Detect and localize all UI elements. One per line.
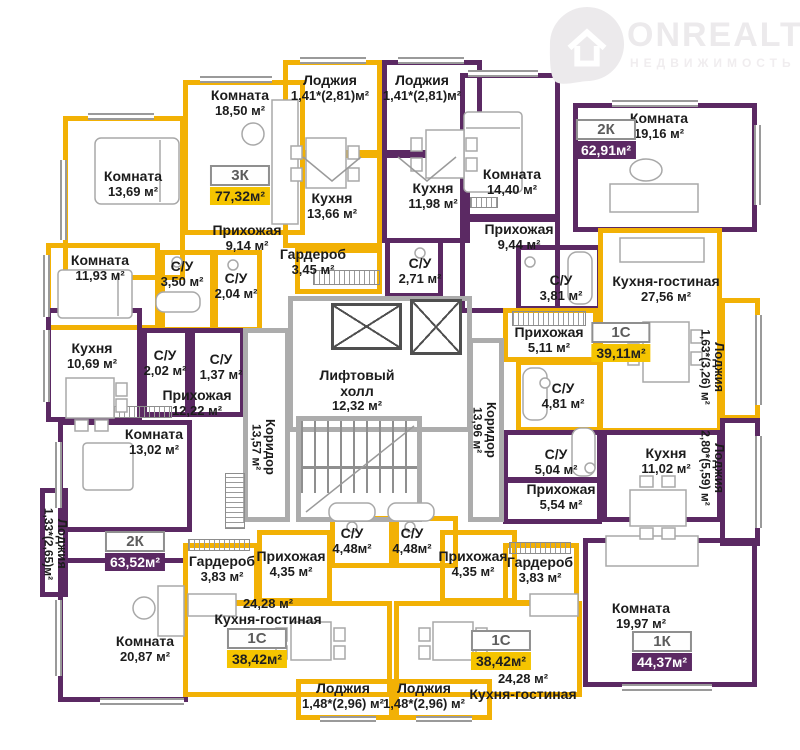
window bbox=[754, 125, 761, 205]
window bbox=[755, 315, 762, 405]
window bbox=[300, 57, 366, 64]
label-wardrobe-br: Гардероб3,83 м² bbox=[507, 555, 573, 585]
label-kitchen-1102: Кухня11,02 м² bbox=[641, 446, 690, 476]
label-room-1997: Комната19,97 м² bbox=[612, 601, 670, 631]
stair-landing bbox=[301, 466, 417, 469]
watermark-brand: ONREALT bbox=[627, 16, 800, 55]
window bbox=[55, 600, 62, 676]
label-hall-554: Прихожая5,54 м² bbox=[526, 482, 595, 512]
label-hall-914: Прихожая9,14 м² bbox=[212, 223, 281, 253]
label-loggia-148-r: Лоджия1,48*(2,96) м² bbox=[383, 681, 465, 711]
window bbox=[320, 716, 376, 722]
label-kitchen-1366: Кухня13,66 м² bbox=[307, 191, 357, 221]
label-su-504: С/У5,04 м² bbox=[535, 447, 578, 477]
watermark-subtitle: НЕДВИЖИМОСТЬ bbox=[630, 56, 796, 70]
label-hall-1222: Прихожая12,22 м² bbox=[162, 388, 231, 418]
badge-1s-bottom-left: 1С38,42м² bbox=[227, 628, 287, 668]
label-hall-bl: Прихожая4,35 м² bbox=[256, 549, 325, 579]
label-loggia-top-right: Лоджия1,41*(2,81)м² bbox=[383, 73, 461, 103]
label-su-481: С/У4,81 м² bbox=[542, 381, 585, 411]
label-su-381: С/У3,81 м² bbox=[540, 273, 583, 303]
window bbox=[88, 113, 154, 120]
label-room-1193: Комната11,93 м² bbox=[71, 253, 129, 283]
wardrobe-hatch bbox=[188, 539, 250, 551]
window bbox=[200, 76, 272, 83]
label-hall-944: Прихожая9,44 м² bbox=[484, 222, 553, 252]
window bbox=[60, 160, 67, 240]
label-loggia-top-left: Лоджия1,41*(2,81)м² bbox=[291, 73, 369, 103]
label-room-1440: Комната14,40 м² bbox=[483, 167, 541, 197]
badge-2k-left: 2К63,52м² bbox=[105, 531, 165, 571]
window bbox=[416, 716, 472, 722]
label-lift-hall: Лифтовый холл12,32 м² bbox=[313, 368, 401, 414]
label-room-1369: Комната13,69 м² bbox=[104, 169, 162, 199]
wardrobe-hatch bbox=[470, 197, 498, 208]
label-su-448-l: С/У4,48м² bbox=[332, 526, 371, 556]
window bbox=[612, 100, 698, 107]
label-kg-2428-r: Кухня-гостиная24,28 м² bbox=[469, 672, 576, 702]
label-room-1850: Комната18,50 м² bbox=[211, 88, 269, 118]
window bbox=[755, 436, 762, 528]
label-room-2087: Комната20,87 м² bbox=[116, 634, 174, 664]
badge-1k: 1К44,37м² bbox=[632, 631, 692, 671]
label-wardrobe-bl: Гардероб3,83 м² bbox=[189, 554, 255, 584]
window bbox=[398, 57, 464, 64]
label-room-1302: Комната13,02 м² bbox=[125, 427, 183, 457]
label-room-1916: Комната19,16 м² bbox=[630, 111, 688, 141]
elevator-shaft-2 bbox=[410, 299, 462, 355]
label-kg-2428-l: Кухня-гостиная24,28 м² bbox=[214, 597, 321, 627]
label-su-350: С/У3,50 м² bbox=[161, 259, 204, 289]
stairs bbox=[301, 421, 417, 493]
label-wardrobe-345: Гардероб3,45 м² bbox=[280, 247, 346, 277]
label-hall-br: Прихожая4,35 м² bbox=[438, 549, 507, 579]
label-su-204: С/У2,04 м² bbox=[215, 271, 258, 301]
label-kitchen-1198: Кухня11,98 м² bbox=[408, 181, 457, 211]
label-hall-511: Прихожая5,11 м² bbox=[514, 325, 583, 355]
label-loggia-163: Лоджия1,63*(3,26) м² bbox=[698, 329, 726, 405]
badge-2k-top: 2К62,91м² bbox=[576, 119, 636, 159]
label-corridor-left: Коридор13,57 м² bbox=[249, 419, 277, 475]
window bbox=[55, 442, 62, 508]
label-su-448-r: С/У4,48м² bbox=[392, 526, 431, 556]
outline-room-2087 bbox=[58, 558, 188, 702]
label-su-137: С/У1,37 м² bbox=[200, 352, 243, 382]
wardrobe-hatch bbox=[225, 473, 245, 529]
label-kg-2756: Кухня-гостиная27,56 м² bbox=[612, 274, 719, 304]
badge-1s-bottom-right: 1С38,42м² bbox=[471, 630, 531, 670]
badge-3k: 3К77,32м² bbox=[210, 165, 270, 205]
window bbox=[100, 698, 184, 705]
onrealt-pin-icon bbox=[548, 4, 626, 88]
window bbox=[43, 330, 50, 402]
wardrobe-hatch bbox=[509, 542, 571, 554]
window bbox=[468, 70, 538, 77]
window bbox=[622, 684, 712, 691]
label-kitchen-1069: Кухня10,69 м² bbox=[67, 341, 117, 371]
badge-1s-mid: 1С39,11м² bbox=[591, 322, 650, 362]
elevator-shaft-1 bbox=[331, 303, 402, 350]
label-loggia-148-l: Лоджия1,48*(2,96) м² bbox=[302, 681, 384, 711]
label-loggia-133: Лоджия1,33*(2,65)м² bbox=[41, 508, 69, 580]
floor-plan: ONREALT НЕДВИЖИМОСТЬ bbox=[0, 0, 800, 750]
label-loggia-280: Лоджия2,80*(5,59) м² bbox=[698, 430, 726, 506]
window bbox=[43, 255, 50, 317]
label-corridor-right: Коридор13,96 м² bbox=[470, 402, 498, 458]
label-su-271: С/У2,71 м² bbox=[399, 256, 442, 286]
label-su-202: С/У2,02 м² bbox=[144, 348, 187, 378]
